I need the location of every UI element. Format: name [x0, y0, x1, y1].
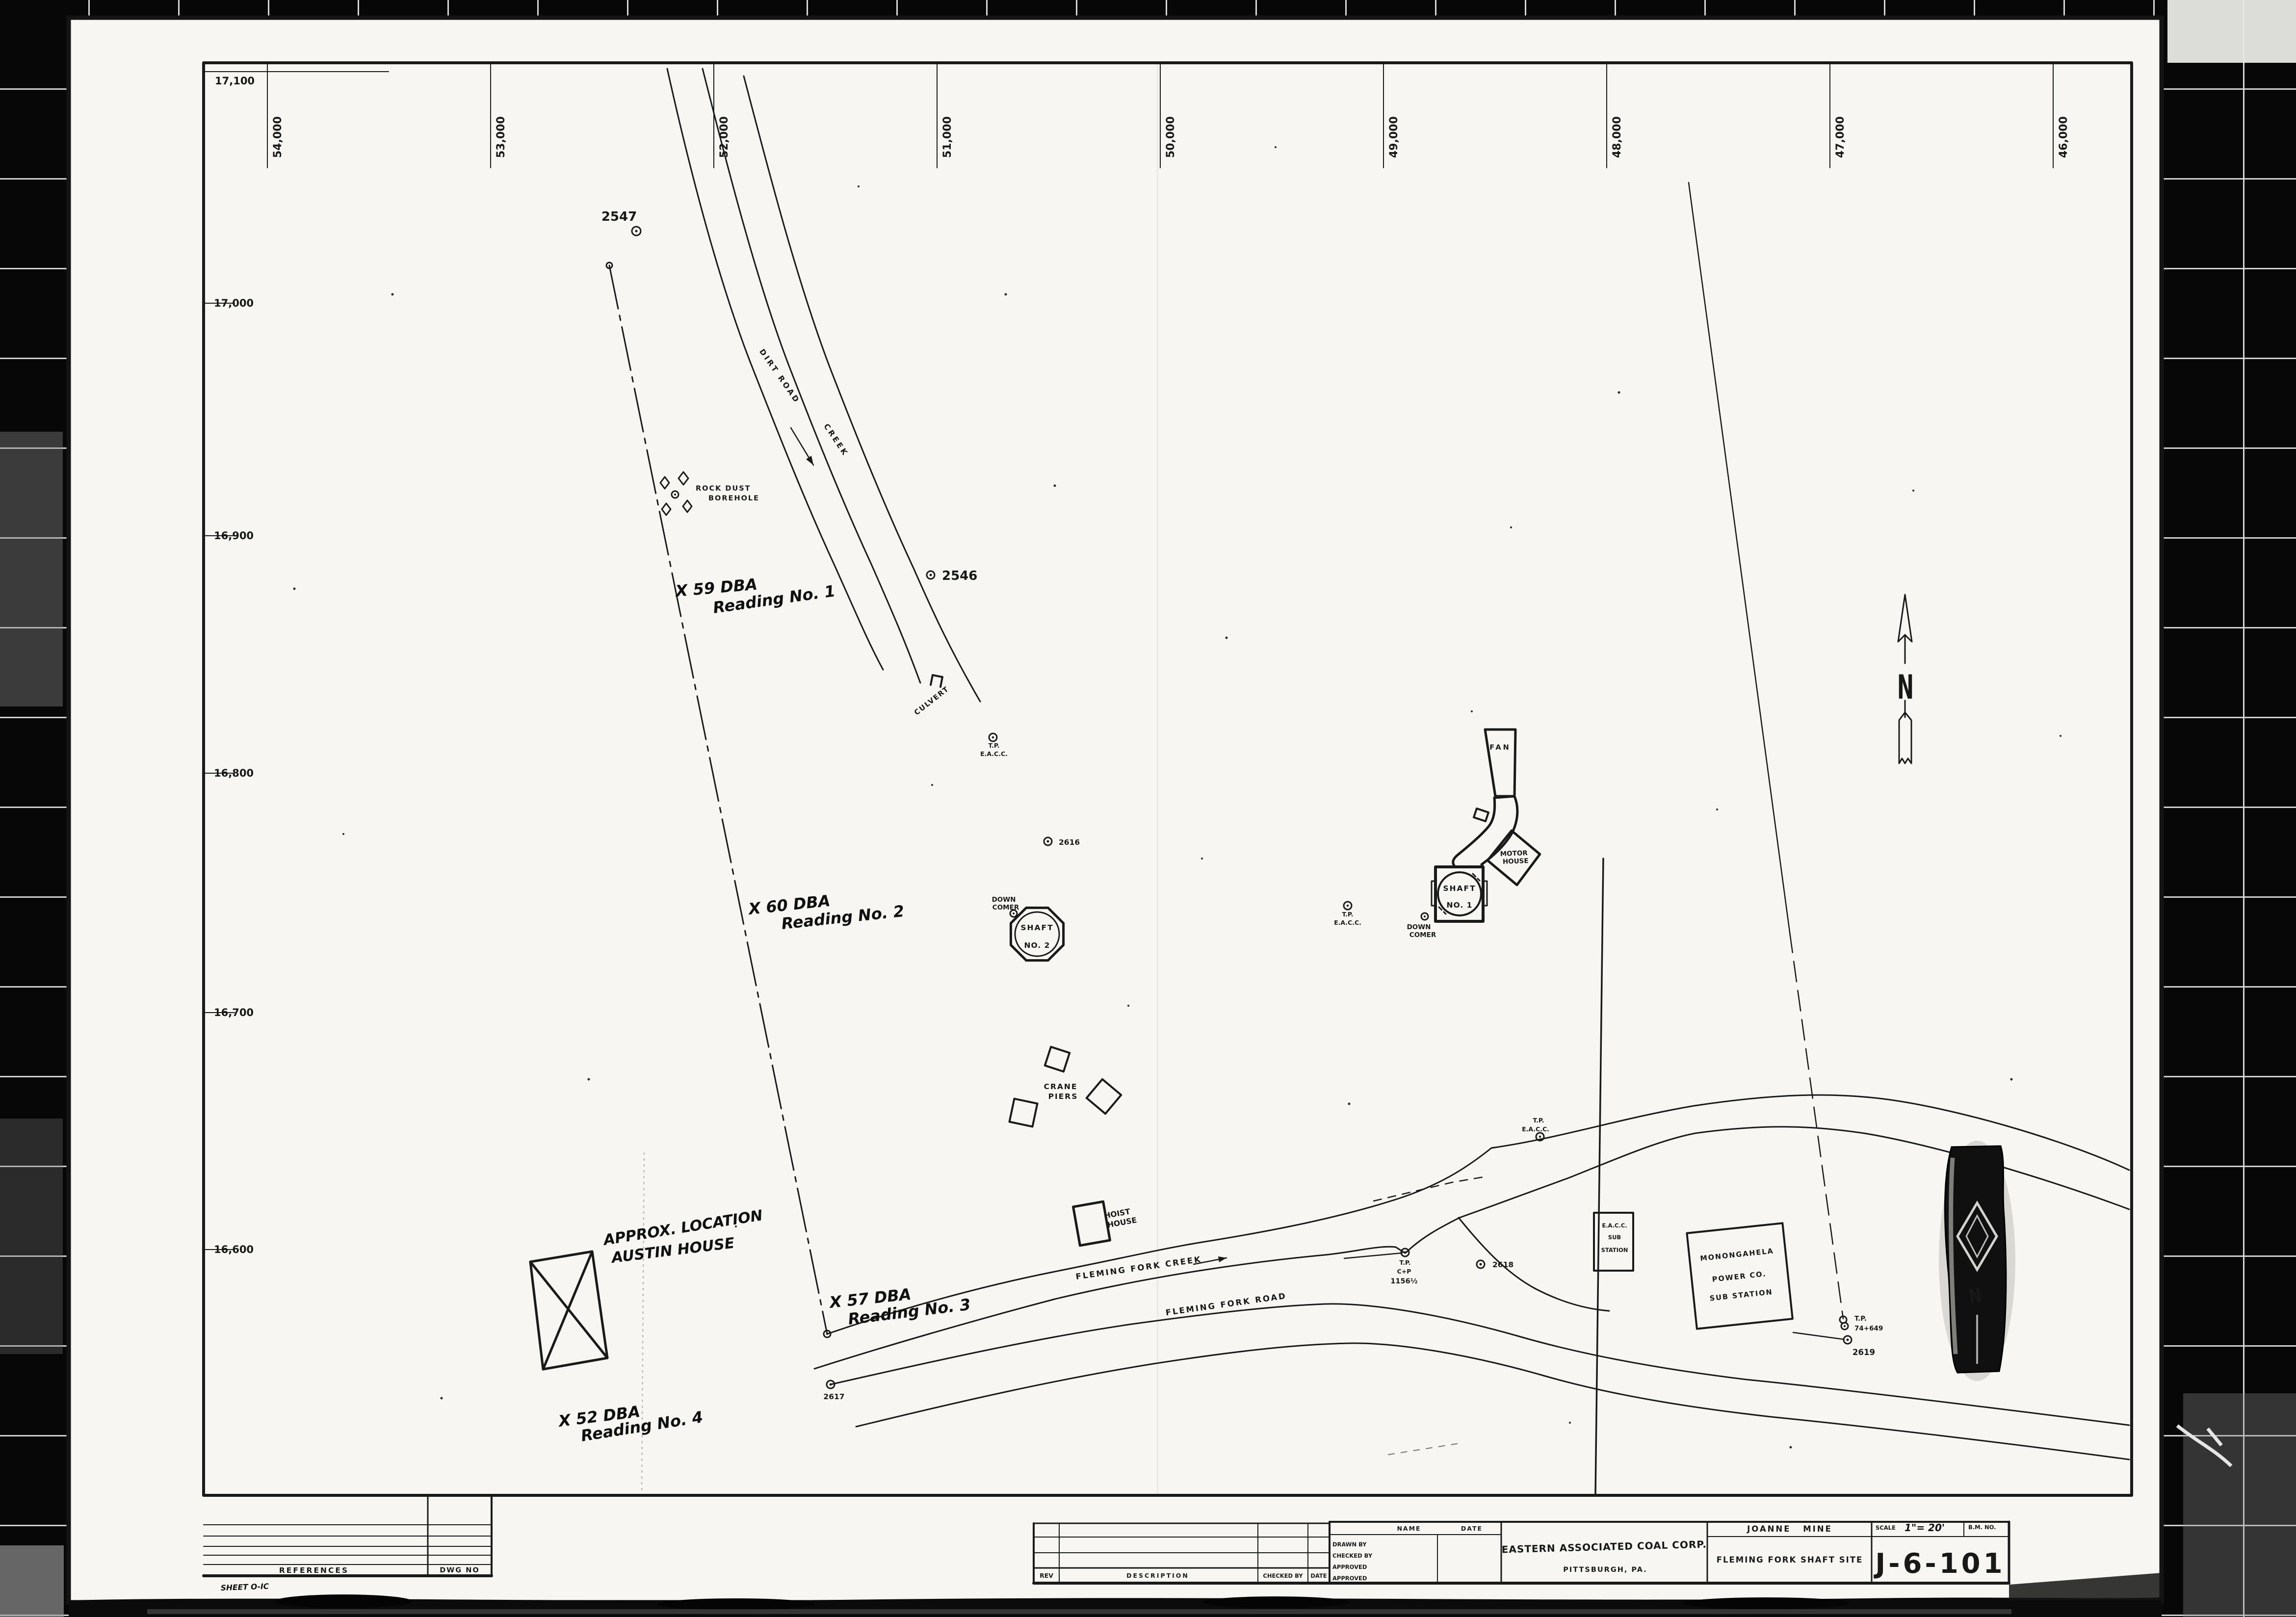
tp74-label: 74+649: [1854, 1325, 1883, 1332]
down-comer-label: DOWN: [992, 896, 1016, 904]
eacc-sub-label: E.A.C.C.: [1602, 1222, 1627, 1229]
left-tick-label: 17,000: [214, 297, 254, 309]
date-header: DATE: [1461, 1525, 1483, 1532]
crane-piers-label: CRANE: [1044, 1082, 1078, 1091]
top-tick-label: 49,000: [1388, 116, 1400, 158]
down-comer-label: COMER: [1409, 931, 1436, 939]
top-tick-label: 47,000: [1834, 116, 1847, 158]
left-tick-label: 17,100: [215, 75, 255, 87]
approved-label: APPROVED: [1332, 1564, 1367, 1570]
elevation-label: 2619: [1852, 1348, 1875, 1357]
elevation-label: 2546: [942, 569, 977, 583]
approved-label: APPROVED: [1332, 1575, 1367, 1582]
checked-by-label: CHECKED BY: [1263, 1572, 1303, 1579]
north-letter: N: [1897, 668, 1914, 707]
checked-by-label: CHECKED BY: [1332, 1552, 1373, 1559]
tp-label: T.P.: [989, 742, 1000, 749]
tp-label: T.P.: [1342, 911, 1354, 918]
eacc-sub-label: STATION: [1601, 1247, 1628, 1253]
scanned-site-drawing: 54,000 53,000 52,000 51,000 50,000 49,00…: [0, 0, 2296, 1617]
top-tick-label: 50,000: [1165, 116, 1177, 158]
shaft2-label: SHAFT: [1020, 923, 1053, 932]
cp-station-label: 1156½: [1390, 1278, 1417, 1285]
rock-dust-label: ROCK DUST: [696, 485, 751, 493]
drawn-by-label: DRAWN BY: [1332, 1541, 1367, 1548]
sheet-title: FLEMING FORK SHAFT SITE: [1717, 1555, 1863, 1565]
left-tick-label: 16,700: [214, 1007, 254, 1018]
tp-label: T.P.: [1854, 1315, 1867, 1323]
top-tick-label: 46,000: [2058, 116, 2070, 158]
mine-name: JOANNE MINE: [1747, 1524, 1832, 1534]
left-tick-label: 16,800: [214, 767, 254, 779]
eacc-label: E.A.C.C.: [1522, 1125, 1549, 1133]
eacc-label: E.A.C.C.: [980, 750, 1008, 757]
down-comer-label: DOWN: [1407, 923, 1431, 931]
shaft2-number: NO. 2: [1024, 941, 1050, 950]
elevation-label: 2616: [1059, 838, 1080, 847]
elevation-label: 2617: [823, 1392, 844, 1401]
dwg-no-label: DWG NO: [440, 1566, 479, 1574]
crane-piers-label: PIERS: [1048, 1092, 1078, 1101]
scale-value: 1"= 20': [1905, 1522, 1945, 1534]
elevation-label: 2618: [1492, 1260, 1513, 1269]
top-tick-label: 51,000: [941, 116, 954, 158]
company-city: PITTSBURGH, PA.: [1563, 1566, 1647, 1574]
top-tick-label: 53,000: [495, 116, 507, 158]
top-tick-label: 48,000: [1611, 116, 1623, 158]
tp-label: T.P.: [1400, 1259, 1411, 1266]
drawing-number: J-6-101: [1873, 1548, 2005, 1580]
tp-label: T.P.: [1533, 1117, 1544, 1124]
top-tick-label: 54,000: [272, 116, 284, 158]
borehole-label: BOREHOLE: [708, 495, 759, 502]
description-label: DESCRIPTION: [1126, 1572, 1189, 1579]
motor-house-label: MOTOR: [1500, 849, 1528, 858]
date-label: DATE: [1310, 1572, 1327, 1579]
sheet-note: SHEET O-IC: [221, 1582, 270, 1592]
eacc-label: E.A.C.C.: [1334, 919, 1361, 926]
down-comer-label: COMER: [992, 904, 1019, 912]
elevation-label: 2547: [601, 209, 637, 224]
rev-label: REV: [1040, 1572, 1053, 1579]
shaft1-number: NO. 1: [1447, 901, 1473, 910]
eacc-sub-label: SUB: [1608, 1234, 1621, 1241]
left-tick-label: 16,600: [214, 1244, 254, 1255]
shaft1-label: SHAFT: [1443, 884, 1476, 893]
bm-no-label: B.M. NO.: [1968, 1524, 1996, 1531]
fan-label: FAN: [1489, 744, 1511, 752]
scale-label: SCALE: [1876, 1524, 1896, 1531]
paper-sheet: [69, 18, 2162, 1602]
references-label: REFERENCES: [279, 1566, 349, 1575]
smudged-north-stamp: N: [1939, 1141, 2015, 1381]
cp-label: C+P: [1397, 1268, 1411, 1275]
left-tick-label: 16,900: [214, 530, 254, 542]
motor-house-label: HOUSE: [1503, 857, 1529, 866]
name-header: NAME: [1397, 1525, 1421, 1532]
